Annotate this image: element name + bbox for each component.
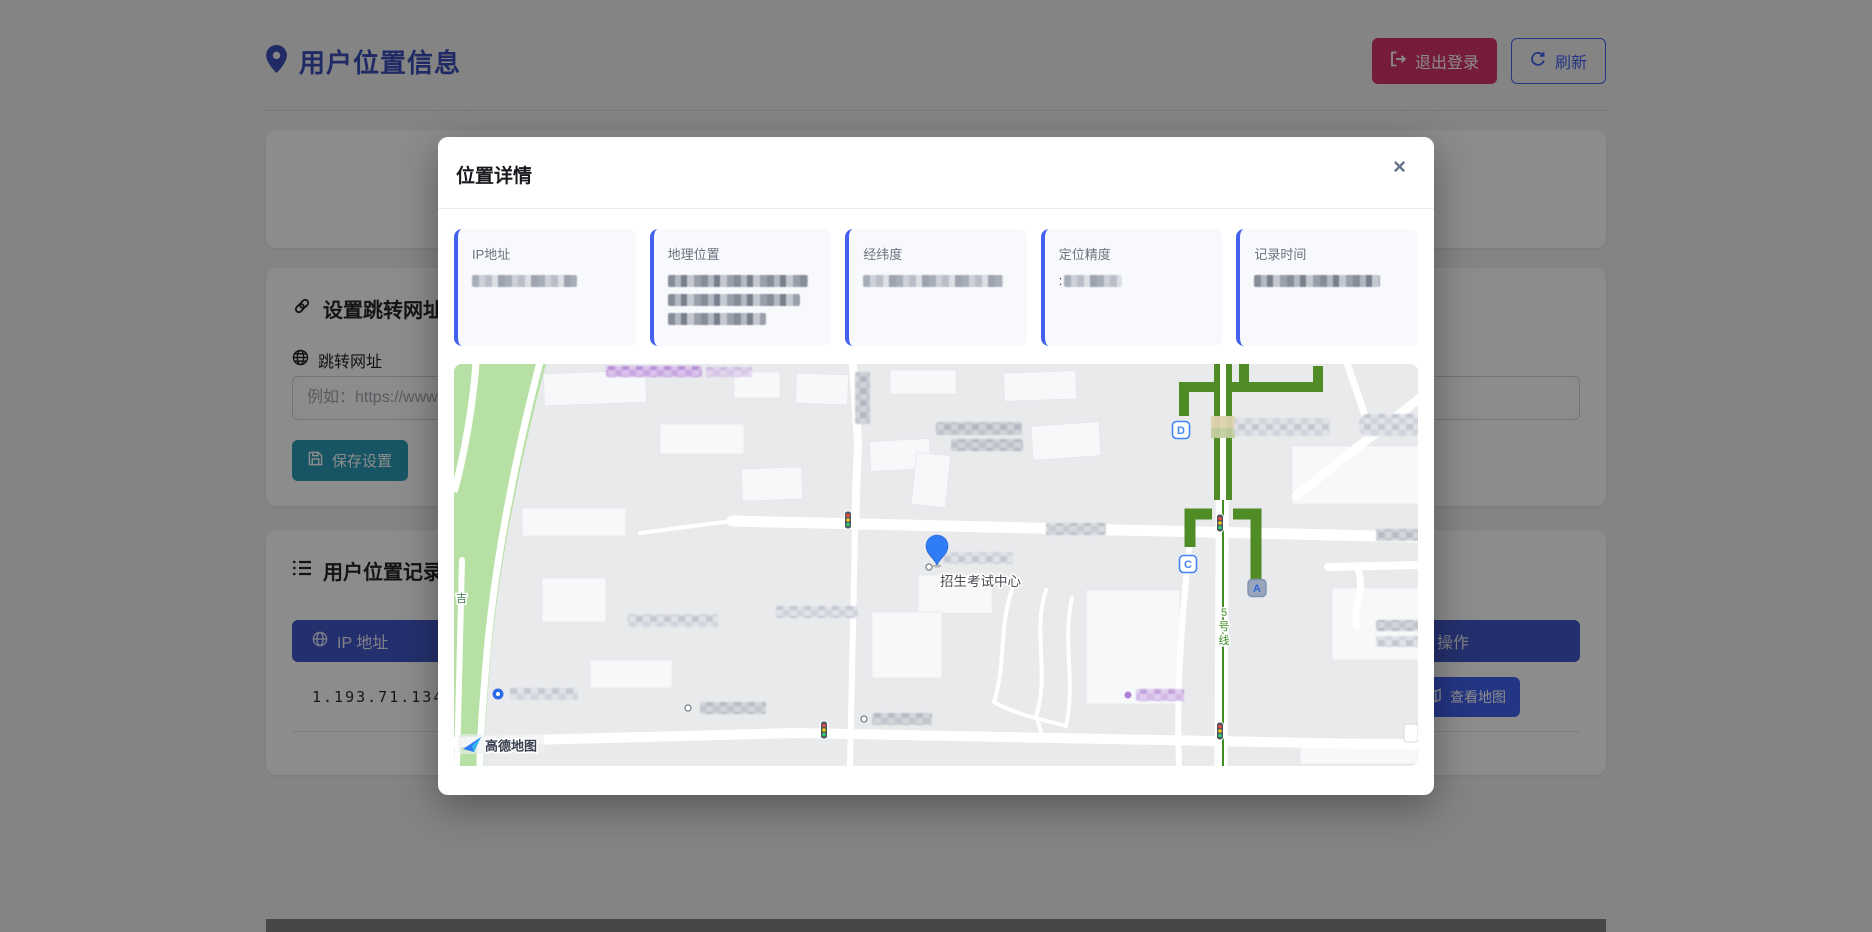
censored-value xyxy=(472,275,577,287)
svg-text:C: C xyxy=(1184,559,1192,571)
info-card-ip: IP地址 xyxy=(454,229,636,346)
modal-title: 位置详情 xyxy=(456,161,532,188)
metro-exit-d: D xyxy=(1173,422,1190,439)
censored-value xyxy=(1064,275,1122,287)
info-card-geo: 地理位置 xyxy=(650,229,832,346)
svg-text:线: 线 xyxy=(1219,633,1230,647)
close-icon[interactable]: × xyxy=(1387,155,1412,179)
svg-text:5: 5 xyxy=(1221,607,1227,619)
map-control-partial[interactable] xyxy=(1404,724,1418,742)
info-card-accuracy: 定位精度 : xyxy=(1041,229,1223,346)
svg-text:号: 号 xyxy=(1219,620,1230,633)
metro-exit-a: A xyxy=(1248,580,1266,597)
censored-value xyxy=(668,294,800,306)
censored-value xyxy=(668,313,766,325)
info-card-time: 记录时间 xyxy=(1236,229,1418,346)
location-details-modal: 位置详情 × IP地址 地理位置 经纬度 定位精度 : 记录时间 xyxy=(438,137,1434,795)
map-provider-logo: 高德地图 xyxy=(458,734,544,754)
svg-text:A: A xyxy=(1253,583,1261,595)
info-card-coords: 经纬度 xyxy=(845,229,1027,346)
metro-exit-c: C xyxy=(1180,556,1197,573)
censored-value xyxy=(863,275,1003,287)
map-canvas[interactable]: D C A 招生考试中心 5 号 线 吉 xyxy=(454,364,1418,766)
poi-label: 招生考试中心 xyxy=(940,574,1021,589)
censored-value xyxy=(1254,275,1380,287)
svg-text:高德地图: 高德地图 xyxy=(485,739,537,754)
road-name-label: 吉 xyxy=(456,592,467,605)
metro-station-footprint xyxy=(1211,416,1235,438)
svg-text:D: D xyxy=(1177,425,1185,437)
modal-header: 位置详情 × xyxy=(438,137,1434,209)
censored-value xyxy=(668,275,808,287)
info-cards-row: IP地址 地理位置 经纬度 定位精度 : 记录时间 xyxy=(454,229,1418,346)
